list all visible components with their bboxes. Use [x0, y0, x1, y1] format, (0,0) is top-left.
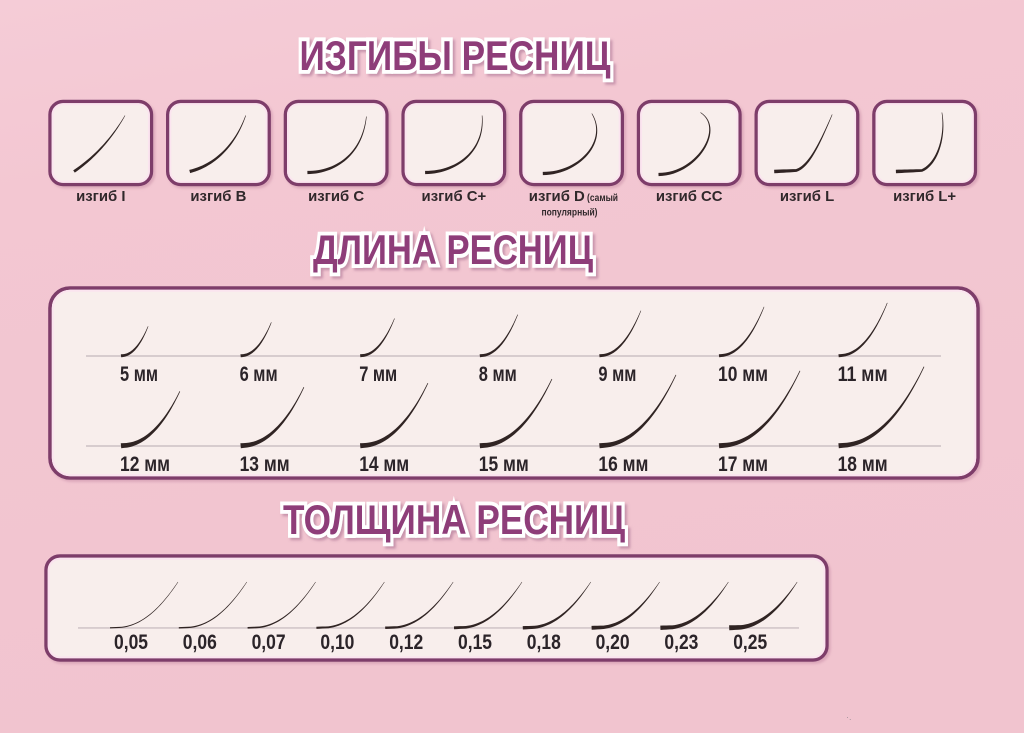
- svg-text:5 мм: 5 мм: [120, 363, 158, 386]
- svg-text:0,23: 0,23: [664, 631, 698, 654]
- svg-text:9 мм: 9 мм: [598, 363, 636, 386]
- svg-text:изгиб D: изгиб D: [529, 189, 585, 205]
- svg-text:0,07: 0,07: [252, 631, 286, 654]
- svg-text:14 мм: 14 мм: [359, 453, 409, 476]
- svg-text:изгиб CC: изгиб CC: [656, 189, 723, 205]
- svg-text:18 мм: 18 мм: [838, 453, 888, 476]
- svg-text:17 мм: 17 мм: [718, 453, 768, 476]
- svg-text:ТОЛЩИНА РЕСНИЦ: ТОЛЩИНА РЕСНИЦ: [283, 496, 625, 543]
- svg-text:10 мм: 10 мм: [718, 363, 768, 386]
- svg-text:изгиб B: изгиб B: [190, 189, 246, 205]
- svg-text:12 мм: 12 мм: [120, 453, 170, 476]
- svg-text:0,25: 0,25: [733, 631, 767, 654]
- svg-text:0,15: 0,15: [458, 631, 492, 654]
- svg-text:ДЛИНА РЕСНИЦ: ДЛИНА РЕСНИЦ: [313, 226, 593, 273]
- svg-text:изгиб C+: изгиб C+: [422, 189, 487, 205]
- svg-text:·.: ·.: [846, 712, 852, 722]
- svg-text:0,18: 0,18: [527, 631, 561, 654]
- svg-text:изгиб L: изгиб L: [780, 189, 834, 205]
- svg-text:0,06: 0,06: [183, 631, 217, 654]
- svg-text:ИЗГИБЫ РЕСНИЦ: ИЗГИБЫ РЕСНИЦ: [300, 32, 611, 79]
- svg-text:(самый: (самый: [587, 192, 618, 204]
- svg-text:16 мм: 16 мм: [598, 453, 648, 476]
- svg-text:изгиб C: изгиб C: [308, 189, 364, 205]
- svg-text:6 мм: 6 мм: [240, 363, 278, 386]
- svg-text:изгиб L+: изгиб L+: [893, 189, 956, 205]
- svg-text:популярный): популярный): [542, 207, 598, 219]
- svg-text:7 мм: 7 мм: [359, 363, 397, 386]
- svg-text:8 мм: 8 мм: [479, 363, 517, 386]
- svg-text:0,05: 0,05: [114, 631, 148, 654]
- svg-text:15 мм: 15 мм: [479, 453, 529, 476]
- svg-text:13 мм: 13 мм: [240, 453, 290, 476]
- svg-text:изгиб I: изгиб I: [76, 189, 125, 205]
- svg-text:0,10: 0,10: [320, 631, 354, 654]
- svg-text:11 мм: 11 мм: [838, 363, 888, 386]
- svg-text:0,20: 0,20: [596, 631, 630, 654]
- svg-text:0,12: 0,12: [389, 631, 423, 654]
